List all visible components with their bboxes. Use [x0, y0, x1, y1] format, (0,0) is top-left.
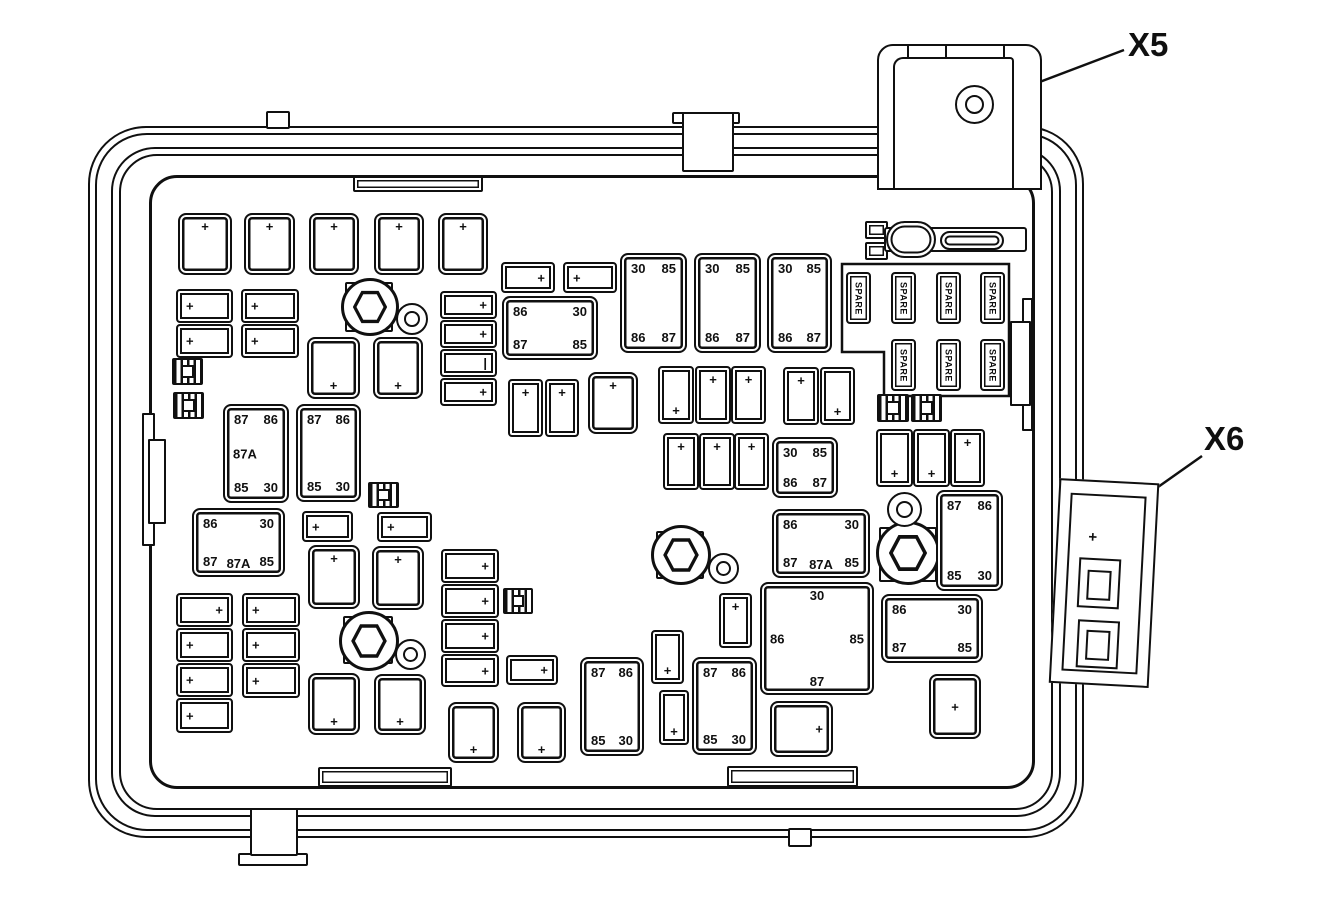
pin-label: +: [479, 328, 487, 341]
pin-label: +: [186, 709, 194, 722]
pin-label: 87: [892, 641, 906, 654]
fuse-cavity: +: [658, 366, 694, 424]
pin-label: +: [215, 604, 223, 617]
fuse-cavity: +: [651, 630, 684, 684]
pin-label: +: [481, 560, 489, 573]
mount-ledge: [353, 176, 483, 192]
relay-cavity: +: [308, 545, 360, 609]
fuse-cavity: +: [176, 593, 233, 627]
terminal-clip-icon: [173, 392, 204, 419]
mount-tab: [788, 828, 812, 847]
pin-label: 86: [705, 331, 719, 344]
pin-label: 87: [736, 331, 750, 344]
pin-label: +: [713, 440, 721, 453]
pin-label: 30: [631, 262, 645, 275]
fuse-cavity: +: [440, 291, 497, 319]
pin-label: +: [252, 674, 260, 687]
pin-label: 85: [736, 262, 750, 275]
relay-cavity: +: [372, 546, 424, 610]
pin-label: +: [538, 743, 546, 756]
bolt-icon: [876, 521, 940, 585]
pin-label: 30: [978, 569, 992, 582]
fuse-cavity: +: [876, 429, 913, 487]
pin-label: 30: [958, 603, 972, 616]
pin-label: +: [312, 520, 320, 533]
relay-cavity: 30858687: [772, 437, 838, 498]
fuse-cavity: +: [176, 628, 233, 662]
spare-fuse: SPARE: [936, 272, 961, 324]
pin-label: +: [479, 386, 487, 399]
relay-cavity: 30858687: [767, 253, 832, 353]
pin-label: 30: [619, 734, 633, 747]
relay-cavity: +: [929, 674, 981, 739]
washer-inner-ring: [403, 647, 418, 662]
pin-label: +: [609, 379, 617, 392]
clip-window: [512, 595, 525, 607]
pin-label: 30: [573, 305, 587, 318]
pin-label: +: [537, 271, 545, 284]
pin-label: 85: [662, 262, 676, 275]
pin-label: 87: [591, 666, 605, 679]
pin-label: +: [709, 373, 717, 386]
pin-label: +: [558, 386, 566, 399]
pin-label: 30: [783, 446, 797, 459]
clip-window: [182, 399, 195, 412]
pin-label: 85: [573, 338, 587, 351]
relay-cavity: 86308785: [502, 296, 598, 360]
fuse-cavity: +: [719, 593, 752, 648]
clip-window: [920, 401, 933, 414]
fuse-cavity: +: [176, 663, 233, 697]
pin-label: 85: [807, 262, 821, 275]
pin-label: 30: [260, 517, 274, 530]
fuse-cavity: +: [659, 690, 689, 745]
bolt-icon: [651, 525, 711, 585]
pin-label: 30: [810, 589, 824, 602]
relay-cavity: 87868530: [296, 404, 361, 502]
pin-label: +: [732, 600, 740, 613]
pin-label: 30: [778, 262, 792, 275]
pin-label: +: [891, 467, 899, 480]
pin-label: +: [672, 404, 680, 417]
pin-label: +: [540, 664, 548, 677]
pin-label: 85: [234, 481, 248, 494]
pin-label: 86: [619, 666, 633, 679]
pin-label: +: [186, 300, 194, 313]
pin-label: +: [481, 630, 489, 643]
fuse-cavity: +: [820, 367, 855, 425]
relay-cavity: +: [244, 213, 295, 275]
pin-label: 86: [783, 518, 797, 531]
spare-fuse: SPARE: [936, 339, 961, 391]
mount-ledge: [727, 766, 858, 787]
spare-label: SPARE: [944, 349, 954, 382]
pin-label: 86: [336, 413, 350, 426]
pin-label: 86: [203, 517, 217, 530]
pin-label: 86: [513, 305, 527, 318]
pin-label: +: [670, 725, 678, 738]
fuse-cavity: +: [734, 433, 769, 490]
relay-cavity: 86308785: [881, 594, 983, 663]
pin-label: 86: [264, 413, 278, 426]
washer-icon: [395, 639, 426, 670]
pin-label: +: [748, 440, 756, 453]
pin-label: +: [573, 271, 581, 284]
pin-label: 86: [732, 666, 746, 679]
spare-label: SPARE: [854, 282, 864, 315]
relay-cavity: +: [374, 213, 424, 275]
pin-label: 87: [947, 499, 961, 512]
pin-label: 85: [947, 569, 961, 582]
relay-cavity: 30868587: [760, 582, 874, 695]
pin-label: +: [266, 220, 274, 233]
washer-inner-ring: [896, 501, 913, 518]
pin-label: 30: [845, 518, 859, 531]
spare-fuse: SPARE: [891, 339, 916, 391]
washer-icon: [396, 303, 428, 335]
relay-cavity: 87868530: [936, 490, 1003, 591]
pin-label: +: [951, 700, 959, 713]
pin-label: +: [252, 639, 260, 652]
mount-tab: [266, 111, 290, 129]
terminal-clip-icon: [877, 394, 909, 422]
pin-label: 87: [813, 476, 827, 489]
wall-rail: [1010, 321, 1031, 406]
pin-label: 86: [631, 331, 645, 344]
washer-inner-ring: [404, 311, 420, 327]
fuse-cavity: |: [440, 349, 497, 377]
fuse-cavity: +: [563, 262, 617, 293]
fuse-cavity: +: [506, 655, 558, 685]
pin-label: +: [815, 723, 823, 736]
relay-cavity: +: [770, 701, 833, 757]
fuse-cavity: +: [302, 511, 353, 542]
pin-label: 85: [591, 734, 605, 747]
x6-slot-inner: [1085, 630, 1111, 661]
relay-cavity: +: [373, 337, 423, 399]
mount-tab: [250, 808, 298, 856]
spare-fuse: SPARE: [891, 272, 916, 324]
terminal-clip-icon: [503, 588, 533, 614]
pin-label: +: [186, 639, 194, 652]
pin-label: 85: [260, 555, 274, 568]
pin-label: +: [330, 552, 338, 565]
fuse-cavity: +: [695, 366, 731, 424]
washer-inner-ring: [716, 561, 731, 576]
pin-label: 85: [813, 446, 827, 459]
pin-label: +: [186, 674, 194, 687]
pin-label: +: [252, 604, 260, 617]
pin-label: 87: [783, 556, 797, 569]
clip-window: [377, 489, 390, 501]
pin-label: +: [396, 715, 404, 728]
pin-label: |: [483, 357, 487, 370]
fuse-cavity: +: [508, 379, 543, 437]
relay-cavity: 87868530: [692, 657, 757, 755]
relay-cavity: 30858687: [620, 253, 687, 353]
pin-label: 30: [336, 480, 350, 493]
pin-label: 30: [264, 481, 278, 494]
washer-icon: [887, 492, 922, 527]
pin-label: +: [481, 595, 489, 608]
pin-label: +: [394, 379, 402, 392]
pin-label: +: [251, 300, 259, 313]
fuse-block-diagram: +++++++++++|+++878687A853087868530863087…: [0, 0, 1344, 918]
pin-label: 30: [732, 733, 746, 746]
fuse-cavity: +: [441, 619, 499, 653]
pin-label: 86: [978, 499, 992, 512]
pin-label: +: [928, 467, 936, 480]
pin-label: 85: [845, 556, 859, 569]
fuse-cavity: +: [377, 512, 432, 542]
pin-label: 87A: [233, 447, 257, 460]
pin-label: 87: [307, 413, 321, 426]
pin-label: 87: [662, 331, 676, 344]
clip-window: [886, 401, 899, 414]
x6-connector: +: [1046, 468, 1166, 701]
fuse-cavity: +: [241, 289, 299, 323]
fuse-cavity: +: [242, 663, 300, 698]
wall-rail: [148, 439, 166, 524]
pin-label: +: [395, 220, 403, 233]
relay-cavity: 87868530: [580, 657, 644, 756]
fuse-cavity: +: [731, 366, 766, 424]
terminal-clip-icon: [911, 394, 942, 422]
terminal-clip-icon: [368, 482, 399, 508]
washer-icon: [708, 553, 739, 584]
bolt-icon: [341, 278, 399, 336]
relay-cavity: 878687A8530: [223, 404, 289, 503]
pin-label: 87: [234, 413, 248, 426]
relay-cavity: 86308787A85: [772, 509, 870, 578]
relay-cavity: +: [308, 673, 360, 735]
pin-label: 87A: [809, 558, 833, 571]
relay-cavity: 86308787A85: [192, 508, 285, 577]
spare-fuse: SPARE: [980, 272, 1005, 324]
relay-cavity: +: [517, 702, 566, 763]
fusible-link-icon: [940, 231, 1004, 250]
fuse-cavity: +: [176, 324, 233, 358]
pin-label: 87: [203, 555, 217, 568]
relay-cavity: +: [438, 213, 488, 275]
pin-label: +: [481, 664, 489, 677]
fuse-cavity: +: [242, 628, 300, 662]
fuse-cavity: +: [440, 320, 497, 348]
fuse-cavity: +: [441, 584, 499, 618]
pin-label: +: [834, 405, 842, 418]
pin-label: +: [964, 436, 972, 449]
component-layer: +++++++++++|+++878687A853087868530863087…: [0, 0, 1344, 918]
relay-cavity: +: [448, 702, 499, 763]
mount-ledge: [318, 767, 452, 787]
relay-cavity: +: [309, 213, 359, 275]
x6-plus-label: +: [1088, 530, 1098, 545]
spare-label: SPARE: [899, 349, 909, 382]
relay-cavity: 30858687: [694, 253, 761, 353]
pin-label: +: [387, 521, 395, 534]
fuse-cavity: +: [441, 654, 499, 687]
pin-label: +: [459, 220, 467, 233]
fuse-cavity: +: [441, 549, 499, 583]
x6-slot-inner: [1086, 570, 1112, 601]
pin-label: 85: [850, 632, 864, 645]
pin-label: 85: [703, 733, 717, 746]
pin-label: +: [186, 335, 194, 348]
pin-label: +: [745, 373, 753, 386]
fuse-cavity: +: [545, 379, 579, 437]
pin-label: 86: [892, 603, 906, 616]
fuse-cavity: +: [663, 433, 699, 490]
bolt-icon: [339, 611, 399, 671]
fuse-cavity: +: [241, 324, 299, 358]
pin-label: 87: [703, 666, 717, 679]
pin-label: +: [677, 440, 685, 453]
relay-cavity: +: [178, 213, 232, 275]
pin-label: 87A: [227, 557, 251, 570]
fuse-cavity: +: [783, 367, 819, 425]
pin-label: +: [330, 379, 338, 392]
pin-label: +: [201, 220, 209, 233]
pin-label: +: [330, 715, 338, 728]
spare-fuse: SPARE: [980, 339, 1005, 391]
pin-label: +: [797, 374, 805, 387]
pin-label: +: [251, 335, 259, 348]
x6-callout-label: X6: [1204, 420, 1244, 458]
x5-callout-label: X5: [1128, 26, 1168, 64]
fuse-cavity: +: [176, 698, 233, 733]
pin-label: 30: [705, 262, 719, 275]
relay-cavity: +: [374, 674, 426, 735]
spare-label: SPARE: [988, 349, 998, 382]
fusible-link-icon: [886, 221, 936, 258]
clip-window: [181, 365, 194, 378]
pin-label: +: [479, 299, 487, 312]
spare-label: SPARE: [988, 282, 998, 315]
fuse-cavity: +: [501, 262, 555, 293]
terminal-clip-icon: [172, 358, 203, 385]
pin-label: +: [330, 220, 338, 233]
pin-label: 86: [778, 331, 792, 344]
pin-label: 86: [783, 476, 797, 489]
fuse-cavity: +: [440, 378, 497, 406]
pin-label: +: [394, 553, 402, 566]
pin-label: 87: [810, 675, 824, 688]
relay-cavity: +: [307, 337, 360, 399]
pin-label: 87: [513, 338, 527, 351]
pin-label: +: [522, 386, 530, 399]
fuse-cavity: +: [950, 429, 985, 487]
pin-label: 87: [807, 331, 821, 344]
pin-label: 85: [307, 480, 321, 493]
pin-label: +: [664, 664, 672, 677]
pin-label: +: [470, 743, 478, 756]
fuse-cavity: +: [699, 433, 735, 490]
mount-tab: [682, 112, 734, 172]
pin-label: 86: [770, 632, 784, 645]
fuse-cavity: +: [176, 289, 233, 323]
fuse-cavity: +: [913, 429, 950, 487]
relay-cavity: +: [588, 372, 638, 434]
spare-label: SPARE: [899, 282, 909, 315]
pin-label: 85: [958, 641, 972, 654]
spare-label: SPARE: [944, 282, 954, 315]
spare-fuse: SPARE: [846, 272, 871, 324]
fuse-cavity: +: [242, 593, 300, 627]
